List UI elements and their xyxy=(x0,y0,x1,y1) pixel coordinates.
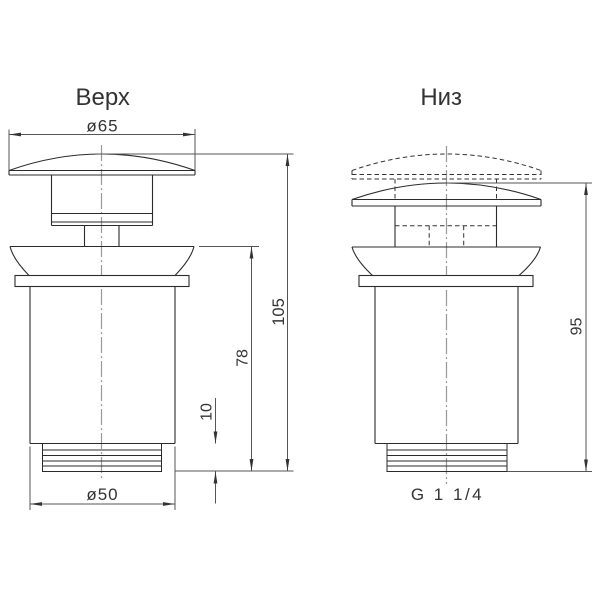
svg-text:95: 95 xyxy=(569,318,586,336)
svg-text:10: 10 xyxy=(199,403,216,421)
svg-text:105: 105 xyxy=(270,298,288,326)
svg-text:Верх: Верх xyxy=(75,84,129,111)
svg-text:G 1 1/4: G 1 1/4 xyxy=(411,485,484,504)
svg-text:78: 78 xyxy=(235,349,252,367)
svg-text:ø65: ø65 xyxy=(86,117,118,136)
svg-text:ø50: ø50 xyxy=(86,485,118,504)
svg-text:Низ: Низ xyxy=(420,84,462,111)
